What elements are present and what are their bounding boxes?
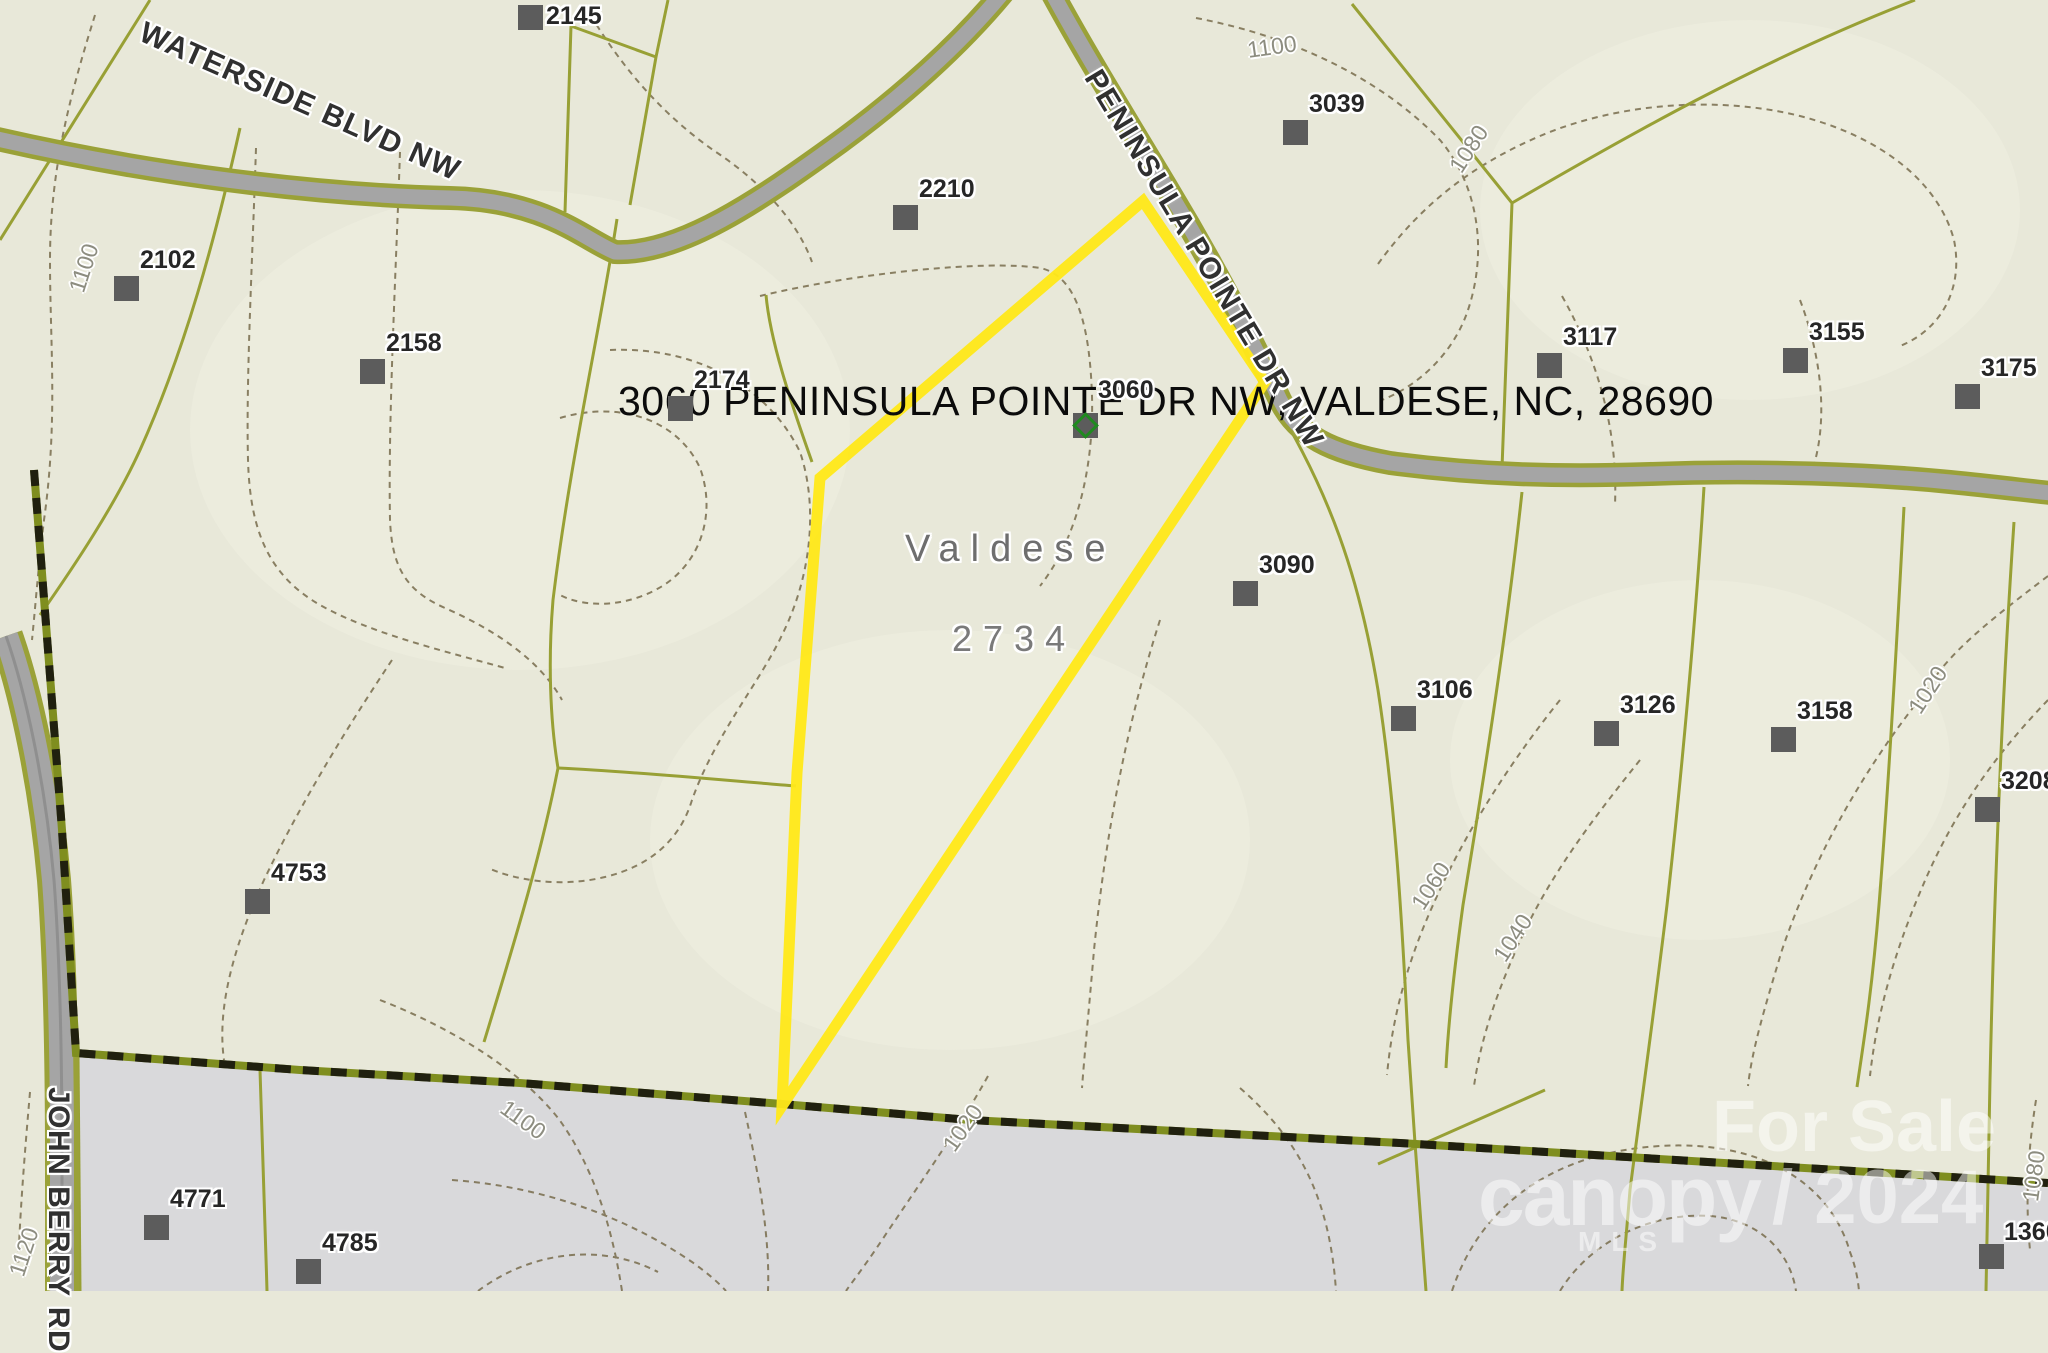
parcel-marker-2158[interactable]	[360, 359, 385, 384]
parcel-marker-3090[interactable]	[1233, 581, 1258, 606]
parcel-marker-1360[interactable]	[1979, 1244, 2004, 1269]
parcel-marker-3158[interactable]	[1771, 727, 1796, 752]
parcel-marker-3039[interactable]	[1283, 120, 1308, 145]
parcel-marker-4771[interactable]	[144, 1215, 169, 1240]
parcel-marker-4785[interactable]	[296, 1259, 321, 1284]
parcel-marker-4753[interactable]	[245, 889, 270, 914]
parcel-marker-3208[interactable]	[1975, 797, 2000, 822]
map-canvas[interactable]: Valdese 2734 3060 PENINSULA POINTE DR NW…	[0, 0, 2048, 1291]
map-geometry	[0, 0, 2048, 1291]
parcel-marker-3175[interactable]	[1955, 384, 1980, 409]
parcel-marker-3126[interactable]	[1594, 721, 1619, 746]
parcel-marker-2210[interactable]	[893, 205, 918, 230]
subject-parcel-point-icon	[1072, 412, 1099, 439]
parcel-marker-2102[interactable]	[114, 276, 139, 301]
parcel-marker-3106[interactable]	[1391, 706, 1416, 731]
parcel-marker-2174[interactable]	[668, 396, 693, 421]
parcel-marker-3117[interactable]	[1537, 353, 1562, 378]
parcel-marker-3155[interactable]	[1783, 348, 1808, 373]
parcel-marker-2145[interactable]	[518, 5, 543, 30]
parcel-marker-3060[interactable]	[1073, 413, 1098, 438]
